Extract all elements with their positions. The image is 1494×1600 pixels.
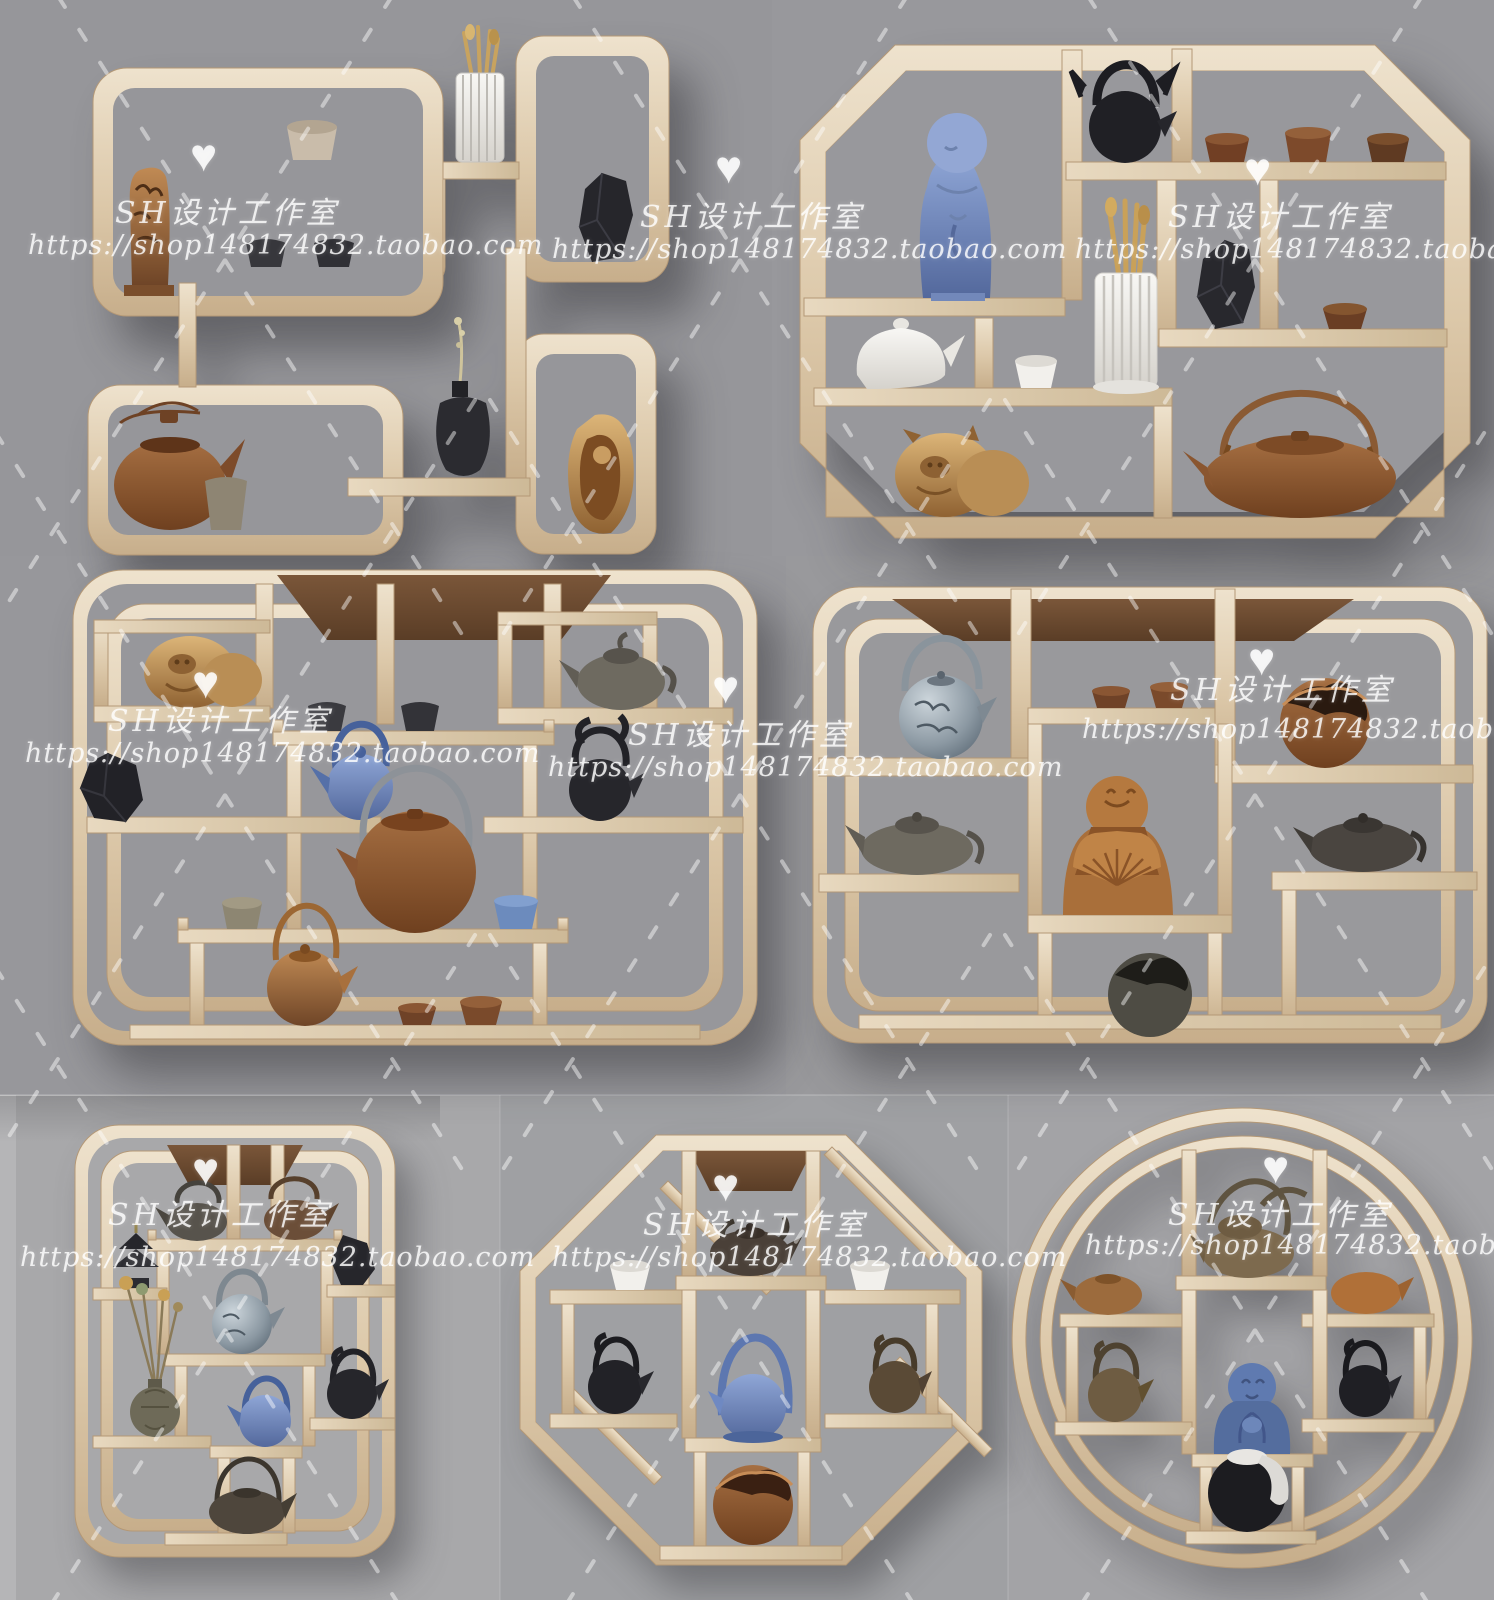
dashed-watermark-lines [0,0,1494,1600]
collage: ♥ SH设计工作室 https://shop148174832.taobao.c… [0,0,1494,1600]
